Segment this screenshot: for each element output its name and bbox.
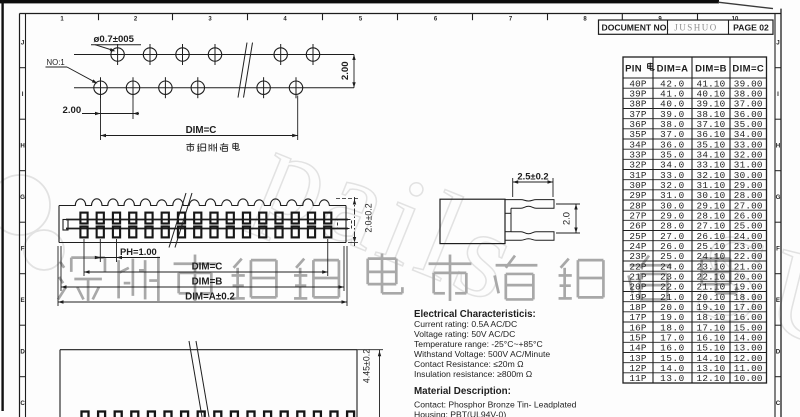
svg-text:2.0: 2.0: [561, 212, 572, 225]
svg-text:E: E: [776, 297, 780, 304]
svg-text:F: F: [776, 245, 780, 252]
svg-text:PAGE 02: PAGE 02: [733, 23, 769, 33]
svg-text:JUSHUO: JUSHUO: [674, 23, 718, 33]
svg-text:DIM=B: DIM=B: [695, 64, 727, 75]
svg-text:I: I: [777, 91, 779, 98]
svg-text:D: D: [776, 348, 781, 355]
svg-text:DIM=A: DIM=A: [657, 64, 689, 75]
svg-text:12.10: 12.10: [697, 373, 726, 384]
svg-text:G: G: [20, 194, 25, 201]
svg-text:7: 7: [509, 16, 513, 22]
svg-text:DIM=C: DIM=C: [186, 125, 217, 136]
svg-text:2: 2: [134, 16, 138, 22]
svg-text:G: G: [776, 194, 781, 201]
svg-text:2.5±0.2: 2.5±0.2: [517, 171, 548, 182]
svg-text:PH=1.00: PH=1.00: [120, 246, 157, 257]
svg-text:4.45±0.2: 4.45±0.2: [362, 349, 372, 383]
svg-text:H: H: [776, 142, 781, 149]
svg-text:Withstand Voltage: 500V AC/Min: Withstand Voltage: 500V AC/Minute: [414, 349, 550, 359]
svg-text:Insulation resistance: ≥800m Ω: Insulation resistance: ≥800m Ω: [414, 369, 533, 379]
svg-text:H: H: [20, 142, 25, 149]
svg-text:10: 10: [732, 16, 739, 22]
svg-text:6: 6: [434, 16, 438, 22]
svg-text:2.00: 2.00: [63, 105, 82, 116]
svg-text:3: 3: [208, 16, 212, 22]
svg-text:10.00: 10.00: [734, 373, 763, 384]
svg-text:8: 8: [583, 16, 587, 22]
svg-text:C: C: [776, 400, 781, 407]
svg-text:11P: 11P: [629, 373, 647, 384]
svg-text:Housing: PBT(UL94V-0): Housing: PBT(UL94V-0): [414, 410, 506, 417]
svg-text:Contact Resistance: ≤20m Ω: Contact Resistance: ≤20m Ω: [414, 359, 524, 369]
svg-text:J: J: [21, 39, 25, 46]
svg-text:13.0: 13.0: [660, 373, 685, 384]
svg-text:Current rating: 0.5A AC/DC: Current rating: 0.5A AC/DC: [414, 319, 517, 329]
svg-text:5: 5: [359, 16, 363, 22]
svg-text:1: 1: [60, 16, 64, 22]
svg-text:ø0.7±005: ø0.7±005: [94, 34, 135, 45]
svg-text:2.00: 2.00: [340, 61, 351, 80]
svg-text:Material Description:: Material Description:: [414, 386, 511, 397]
svg-text:Temperature range: -25°C~+85°C: Temperature range: -25°C~+85°C: [414, 339, 543, 349]
svg-text:I: I: [22, 91, 24, 98]
svg-text:DOCUMENT NO.: DOCUMENT NO.: [602, 23, 669, 33]
svg-text:E: E: [21, 297, 25, 304]
svg-text:C: C: [20, 400, 25, 407]
svg-text:DIM=A±0.2: DIM=A±0.2: [185, 292, 235, 303]
svg-text:PIN: PIN: [625, 64, 642, 75]
svg-text:D: D: [20, 348, 25, 355]
svg-text:F: F: [21, 245, 25, 252]
svg-text:DIM=C: DIM=C: [192, 262, 223, 273]
svg-text:DIM=B: DIM=B: [192, 277, 223, 288]
svg-text:4: 4: [283, 16, 287, 22]
svg-text:2.0±0.2: 2.0±0.2: [364, 203, 374, 232]
svg-text:Voltage rating: 50V AC/DC: Voltage rating: 50V AC/DC: [414, 329, 515, 339]
svg-text:Contact: Phosphor Bronze Tin-: Contact: Phosphor Bronze Tin- Leadplated: [414, 400, 577, 410]
svg-text:J: J: [776, 39, 780, 46]
svg-text:NO:1: NO:1: [47, 58, 65, 67]
svg-text:DIM=C: DIM=C: [732, 64, 764, 75]
svg-text:9: 9: [658, 16, 662, 22]
